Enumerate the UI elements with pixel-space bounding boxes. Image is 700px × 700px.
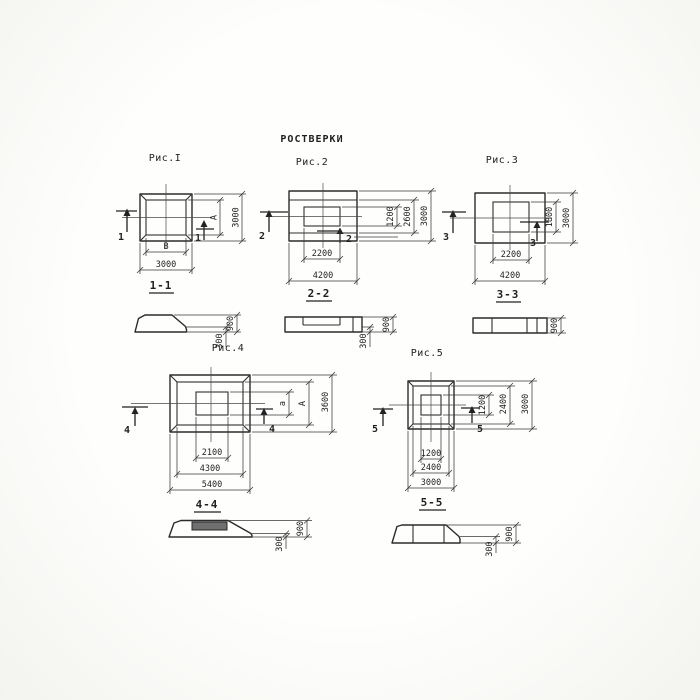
fig2-dim-inner-width: 2200 — [312, 249, 332, 259]
section4-height-total: 900 — [296, 521, 306, 536]
fig2-dim-mid-height: 2600 — [403, 206, 413, 226]
fig3-section-label: 3-3 — [497, 288, 520, 301]
fig4-caption: Рис.4 — [212, 343, 245, 354]
fig1-section-label: 1-1 — [150, 279, 173, 292]
fig4-cut-mark-left: 4 — [122, 407, 148, 436]
fig4-dim-core-width: 2100 — [202, 448, 222, 458]
section-2-2-view: 300 900 — [285, 314, 397, 349]
fig3-caption: Рис.3 — [486, 155, 519, 166]
fig2-dim-outer-height: 3000 — [420, 206, 430, 226]
fig3-cut-label-right: 3 — [530, 238, 536, 249]
fig5-dim-mid-height: 2400 — [499, 394, 509, 414]
cut-arrow-icon — [380, 407, 387, 414]
section5-joints — [413, 525, 444, 543]
cut-arrow-icon — [201, 220, 208, 227]
fig3-plan: Рис.3 3 3 1800 3000 2200 4200 3-3 — [442, 155, 578, 302]
fig3-inner-outline — [493, 202, 529, 232]
section5-height-edge: 300 — [485, 541, 495, 556]
fig4-dim-outer-height: 3600 — [321, 392, 331, 412]
cut-arrow-icon — [266, 210, 273, 217]
fig2-caption: Рис.2 — [296, 157, 329, 168]
cut-arrow-icon — [469, 406, 476, 413]
fig3-dim-outer-width: 4200 — [500, 271, 520, 281]
section-4-4-view: 300 900 — [169, 518, 312, 552]
section5-body — [392, 525, 460, 543]
fig4-plan: Рис.4 4 4 а А 3600 2100 4300 5400 — [122, 343, 337, 512]
fig5-dim-outer-width: 3000 — [421, 478, 441, 488]
section4-recess — [192, 522, 227, 530]
fig4-dim-outer-width: 5400 — [202, 480, 222, 490]
fig1-dim-inner-height: А — [210, 215, 220, 220]
section5-height-total: 900 — [505, 526, 515, 541]
cut-arrow-icon — [132, 407, 139, 414]
fig5-caption: Рис.5 — [411, 348, 444, 359]
fig4-dim-mid-width: 4300 — [200, 464, 220, 474]
section-5-5-view: 300 900 — [392, 522, 521, 557]
fig1-cut-mark-right: 1 — [195, 220, 214, 244]
fig5-plan: Рис.5 5 5 1200 2400 3000 1200 2400 300 — [372, 348, 537, 510]
fig4-cut-label-right: 4 — [269, 424, 275, 435]
fig5-cut-label-right: 5 — [477, 424, 483, 435]
fig1-caption: Рис.I — [149, 153, 182, 164]
fig1-cut-label-left: 1 — [118, 232, 124, 243]
fig4-dim-mid-height: А — [298, 401, 308, 406]
fig3-cut-mark-left: 3 — [442, 210, 466, 243]
fig2-dim-core-height: 1200 — [386, 206, 396, 226]
drawing-canvas: РОСТВЕРКИ Рис.I 1 1 В 3000 А 3000 1-1 — [0, 0, 700, 700]
fig3-dim-inner-height: 1800 — [545, 207, 555, 227]
section2-height-total: 900 — [382, 317, 392, 332]
section2-height-edge: 300 — [359, 333, 369, 348]
drawing-title: РОСТВЕРКИ — [280, 134, 343, 145]
fig2-section-label: 2-2 — [308, 287, 331, 300]
section1-height-total: 900 — [226, 316, 236, 331]
cut-arrow-icon — [450, 210, 457, 217]
cut-arrow-icon — [124, 209, 131, 217]
section3-body — [473, 318, 547, 333]
fig5-dim-outer-height: 3000 — [521, 394, 531, 414]
section3-height-total: 900 — [550, 318, 560, 333]
fig5-dim-core-height: 1200 — [478, 395, 488, 415]
fig3-dim-inner-width: 2200 — [501, 250, 521, 260]
fig2-plan: Рис.2 2 2 1200 2600 3000 2200 4200 2-2 — [259, 157, 436, 301]
fig2-cut-mark-left: 2 — [259, 210, 288, 242]
fig5-dim-mid-width: 2400 — [421, 463, 441, 473]
fig5-section-label: 5-5 — [421, 496, 444, 509]
fig1-cut-mark-left: 1 — [116, 209, 137, 244]
section-3-3-view: 900 — [473, 315, 566, 336]
section1-body — [135, 315, 187, 332]
fig2-dim-outer-width: 4200 — [313, 271, 333, 281]
section2-recess — [303, 317, 353, 332]
fig4-dim-core-height: а — [278, 401, 288, 406]
fig3-dim-outer-height: 3000 — [562, 208, 572, 228]
fig5-cut-mark-left: 5 — [372, 407, 393, 435]
blueprint-page: РОСТВЕРКИ Рис.I 1 1 В 3000 А 3000 1-1 — [0, 0, 700, 700]
fig1-plan: Рис.I 1 1 В 3000 А 3000 1-1 — [116, 153, 246, 293]
fig1-dim-outer-width: 3000 — [156, 260, 176, 270]
fig5-cut-label-left: 5 — [372, 424, 378, 435]
fig1-dim-inner-width: В — [163, 242, 168, 252]
fig4-section-label: 4-4 — [196, 498, 219, 511]
fig1-dim-outer-height: 3000 — [232, 207, 242, 227]
section4-height-edge: 300 — [275, 536, 285, 551]
fig3-cut-label-left: 3 — [443, 232, 449, 243]
fig4-cut-mark-right: 4 — [256, 408, 275, 435]
fig2-cut-label-bottom: 2 — [346, 234, 352, 245]
fig5-dim-core-width: 1200 — [421, 449, 441, 459]
fig4-centerlines — [131, 367, 265, 442]
fig4-cut-label-left: 4 — [124, 425, 130, 436]
section3-joints — [492, 318, 537, 333]
fig2-cut-label-left: 2 — [259, 231, 265, 242]
